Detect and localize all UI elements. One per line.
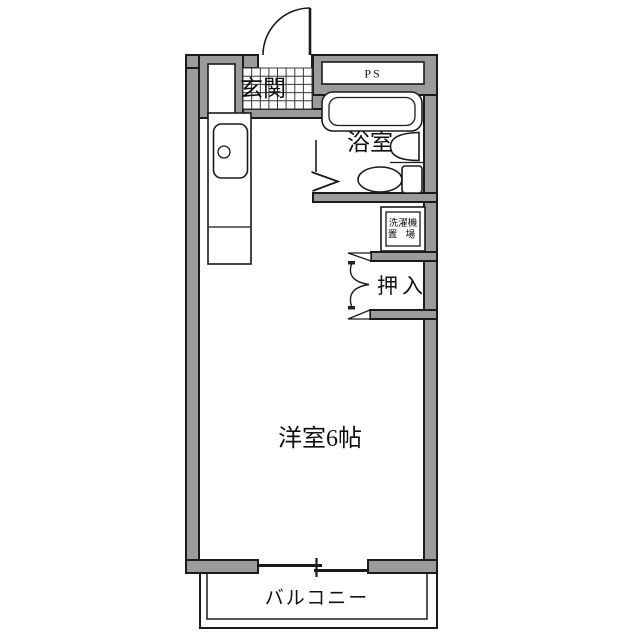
shoe-cabinet: [208, 64, 235, 117]
wall-bottom-left: [186, 560, 258, 573]
laundry-label-line1: 洗濯機: [389, 217, 418, 229]
wall-bathroom-bottom: [313, 193, 437, 202]
floor-plan-page: PS 玄関 浴室 洗濯機 置 場: [0, 0, 640, 640]
laundry-space: [381, 207, 425, 251]
toilet-bowl: [358, 167, 402, 192]
wall-closet-top: [371, 252, 437, 261]
wall-entrance-bottom: [243, 109, 325, 118]
kitchen-counter: [208, 113, 251, 264]
wall-closet-bottom: [370, 310, 437, 319]
western-room-label: 洋室6帖: [278, 425, 362, 452]
bathroom-label: 浴室: [347, 130, 393, 155]
entrance-label: 玄関: [240, 76, 286, 101]
toilet-tank: [402, 166, 422, 193]
closet-label: 押入: [377, 274, 427, 298]
wall-bottom-right: [368, 560, 437, 573]
wall-left: [186, 55, 199, 573]
floor-plan-drawing: PS 玄関 浴室 洗濯機 置 場: [0, 0, 640, 640]
laundry-label-line2: 置 場: [388, 229, 418, 241]
pipe-space-label: PS: [364, 67, 381, 81]
balcony-label: バルコニー: [265, 588, 370, 609]
